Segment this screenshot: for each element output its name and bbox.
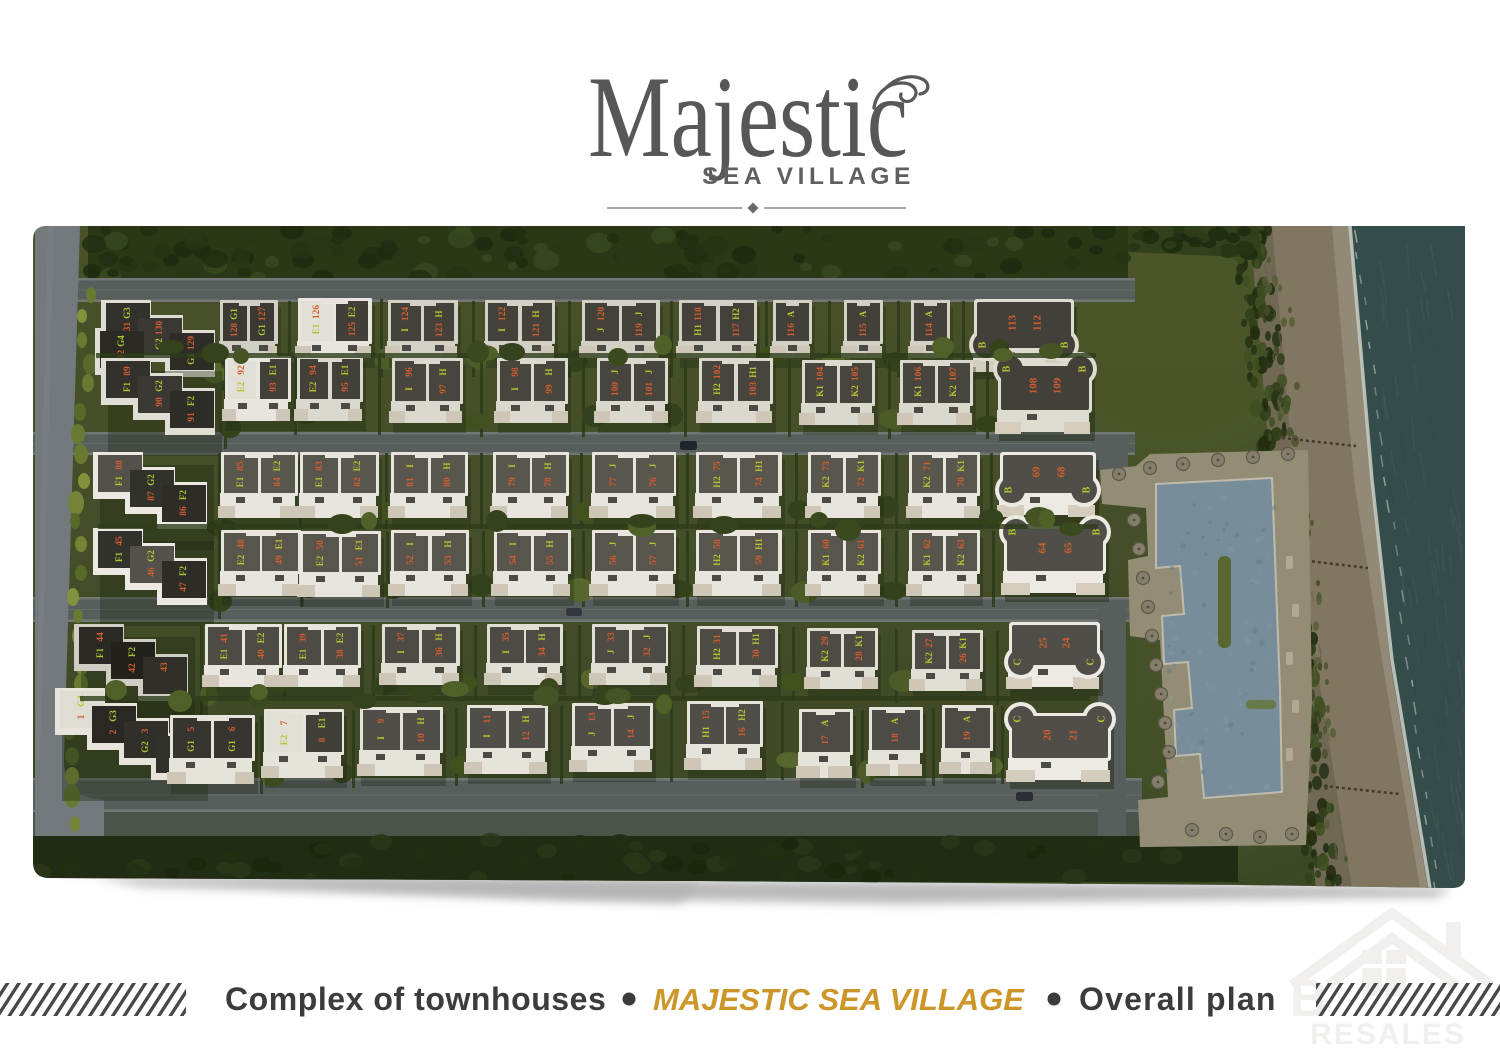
svg-text:Overall plan: Overall plan — [1079, 981, 1277, 1017]
svg-text:SEA VILLAGE: SEA VILLAGE — [702, 163, 915, 190]
svg-text:Complex of townhouses: Complex of townhouses — [225, 981, 606, 1017]
svg-text:MAJESTIC SEA VILLAGE: MAJESTIC SEA VILLAGE — [653, 982, 1025, 1017]
svg-text:RESALES: RESALES — [1310, 1018, 1466, 1051]
